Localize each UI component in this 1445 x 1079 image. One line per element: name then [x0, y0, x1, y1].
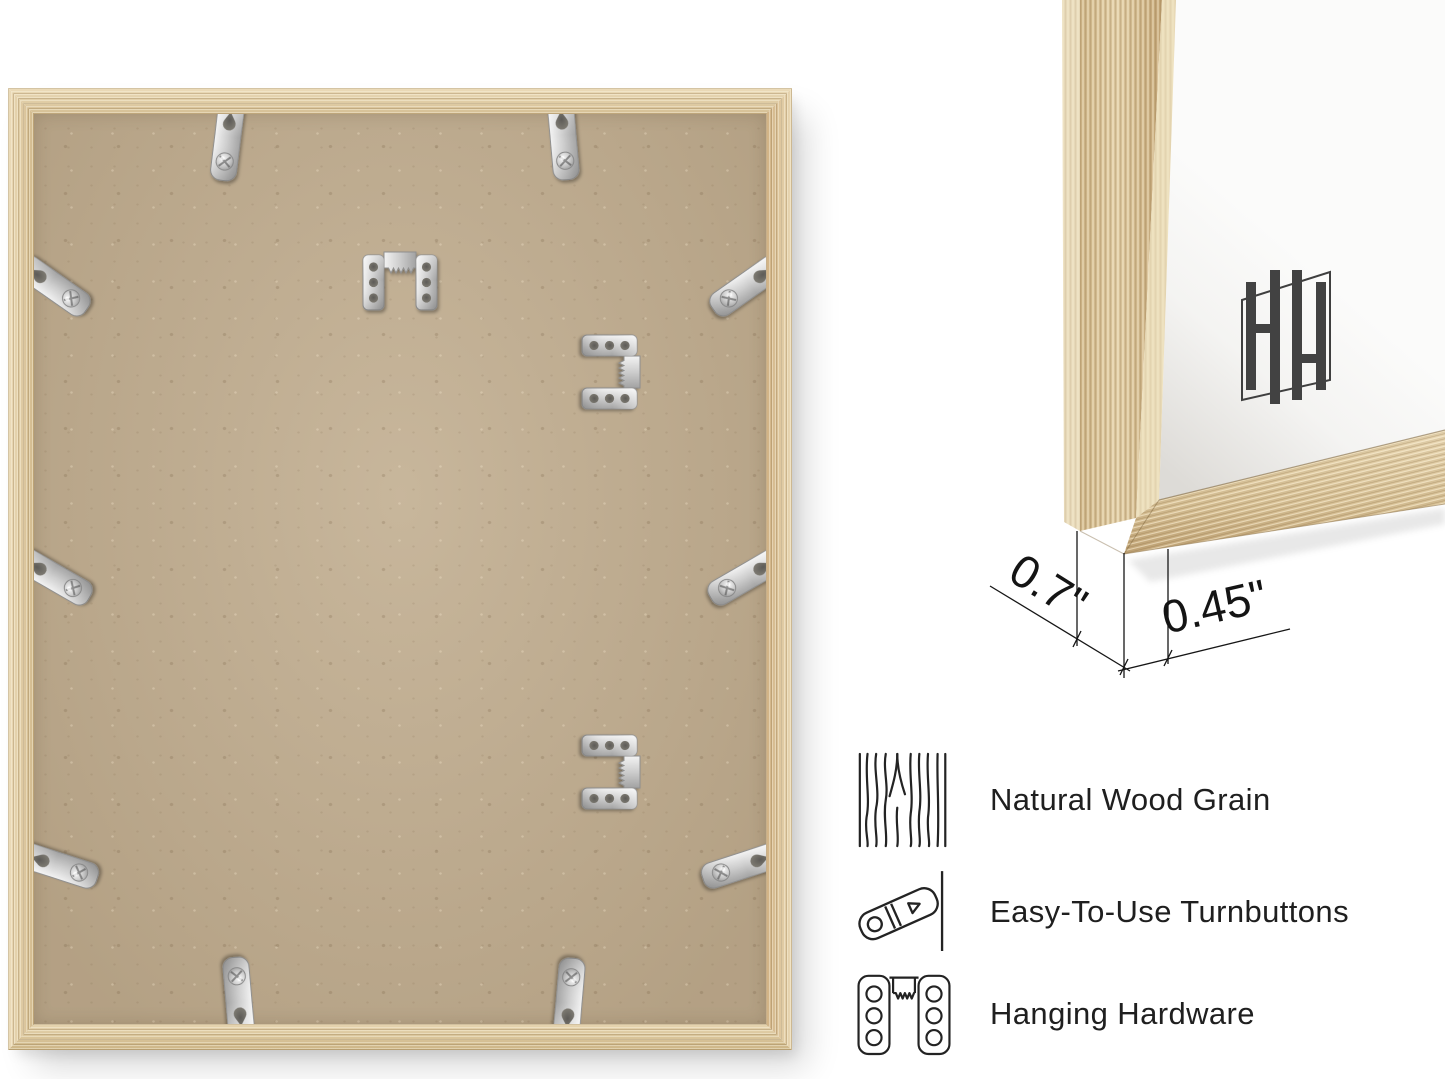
- dimension-lines: [990, 531, 1290, 678]
- sawtooth-hanger: [362, 250, 438, 317]
- face-dimension-label: 0.45": [1157, 569, 1272, 643]
- wood-grain-icon: [852, 748, 956, 852]
- frame-rail-right: [766, 88, 792, 1050]
- frame-rail-left: [8, 88, 34, 1050]
- sawtooth-hanger: [580, 734, 642, 810]
- frame-rail-bottom: [8, 1024, 792, 1050]
- mat-board: [1159, 0, 1445, 500]
- product-image-canvas: 0.7" 0.45" Natural Wood Grain: [0, 0, 1445, 1079]
- hh-monogram-logo-icon: [1242, 270, 1330, 404]
- depth-dimension-label: 0.7": [1001, 543, 1097, 630]
- feature-row-hanging-hardware: Hanging Hardware: [852, 962, 1432, 1066]
- frame-back-photo: [8, 88, 792, 1050]
- corner-shadow: [1128, 508, 1445, 582]
- frame-rail-top: [8, 88, 792, 114]
- sawtooth-hanger: [580, 334, 642, 410]
- feature-label: Easy-To-Use Turnbuttons: [990, 894, 1349, 930]
- feature-label: Natural Wood Grain: [990, 782, 1271, 818]
- hanging-hardware-icon: [852, 962, 956, 1066]
- feature-row-turnbuttons: Easy-To-Use Turnbuttons: [852, 860, 1432, 964]
- feature-row-wood-grain: Natural Wood Grain: [852, 748, 1432, 852]
- feature-label: Hanging Hardware: [990, 996, 1255, 1032]
- frame-corner-bottom-rail: [1080, 430, 1445, 554]
- frame-corner-vertical-rail: [1062, 0, 1176, 531]
- turnbutton-icon: [852, 860, 956, 964]
